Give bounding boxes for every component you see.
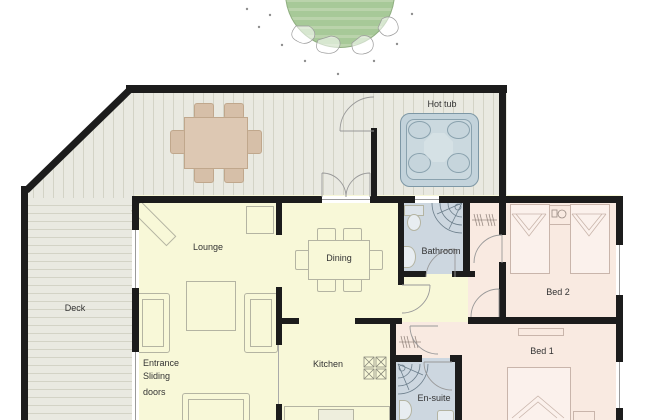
room-label-kitchen: Kitchen bbox=[313, 359, 343, 369]
outdoor-chair bbox=[246, 130, 262, 154]
shower-icon bbox=[431, 202, 463, 234]
nightstand-lamp-icon bbox=[549, 205, 569, 223]
wall bbox=[402, 271, 426, 277]
kitchen-sink bbox=[318, 409, 354, 420]
window bbox=[132, 230, 139, 288]
toilet-bowl-icon bbox=[407, 214, 421, 231]
hot-tub-center bbox=[424, 133, 453, 162]
wall bbox=[390, 318, 396, 420]
sliding-door bbox=[132, 352, 139, 420]
toilet-cistern bbox=[437, 410, 454, 420]
room-label-bed1: Bed 1 bbox=[530, 346, 554, 356]
hob-icon bbox=[363, 356, 387, 380]
window bbox=[616, 245, 623, 295]
wall bbox=[132, 196, 322, 203]
bed-fold-icon bbox=[510, 204, 548, 244]
wall bbox=[276, 404, 282, 420]
room-label-lounge: Lounge bbox=[193, 242, 223, 252]
wall bbox=[282, 318, 299, 324]
wall bbox=[616, 408, 623, 420]
tree-foliage-icon bbox=[0, 0, 650, 90]
wall bbox=[616, 196, 623, 245]
wall bbox=[468, 317, 623, 324]
dining-chair bbox=[368, 250, 383, 270]
bed-fold-icon bbox=[507, 367, 569, 420]
sofa-cushion bbox=[250, 299, 272, 347]
wardrobe-icon bbox=[471, 206, 498, 234]
bed-fold-icon bbox=[570, 204, 608, 244]
floor-plan: Hot tub Deck Lounge Dining Kitchen Bathr… bbox=[0, 0, 650, 420]
wall bbox=[499, 196, 506, 235]
wall bbox=[132, 196, 139, 230]
side-table bbox=[246, 206, 274, 234]
radiator bbox=[518, 328, 564, 336]
fence-wall bbox=[371, 128, 377, 198]
outdoor-dining-table bbox=[184, 117, 248, 169]
room-label-dining: Dining bbox=[326, 253, 352, 263]
wall bbox=[276, 287, 282, 345]
wall bbox=[463, 196, 470, 277]
room-label-hot-tub: Hot tub bbox=[427, 99, 456, 109]
wall bbox=[499, 85, 506, 199]
wall bbox=[370, 196, 623, 203]
nightstand bbox=[573, 411, 595, 420]
hot-tub-seat bbox=[408, 121, 431, 139]
coffee-table bbox=[186, 281, 236, 331]
room-label-ensuite: En-suite bbox=[417, 393, 450, 403]
hot-tub-seat bbox=[447, 153, 470, 173]
hot-tub-seat bbox=[447, 121, 470, 139]
room-label-bed2: Bed 2 bbox=[546, 287, 570, 297]
wardrobe-icon bbox=[398, 330, 422, 354]
entrance-label-line3: doors bbox=[143, 387, 166, 397]
wall bbox=[21, 186, 28, 420]
entrance-label-line2: Sliding bbox=[143, 371, 170, 381]
french-door-threshold bbox=[322, 196, 370, 203]
wall bbox=[132, 288, 139, 352]
sofa-cushion bbox=[188, 399, 244, 420]
room-label-bathroom: Bathroom bbox=[421, 246, 460, 256]
wall bbox=[455, 355, 462, 420]
entrance-label-line1: Entrance bbox=[143, 358, 179, 368]
room-label-deck: Deck bbox=[65, 303, 86, 313]
window bbox=[616, 362, 623, 408]
wall bbox=[276, 196, 282, 235]
outdoor-chair bbox=[224, 167, 244, 183]
shower-icon bbox=[397, 363, 429, 395]
outdoor-chair bbox=[194, 167, 214, 183]
sofa-cushion bbox=[142, 299, 164, 347]
wall bbox=[390, 355, 422, 362]
wall bbox=[499, 262, 506, 320]
window bbox=[415, 196, 439, 203]
opening-line bbox=[278, 345, 279, 404]
wall bbox=[616, 295, 623, 362]
wall bbox=[126, 85, 507, 93]
